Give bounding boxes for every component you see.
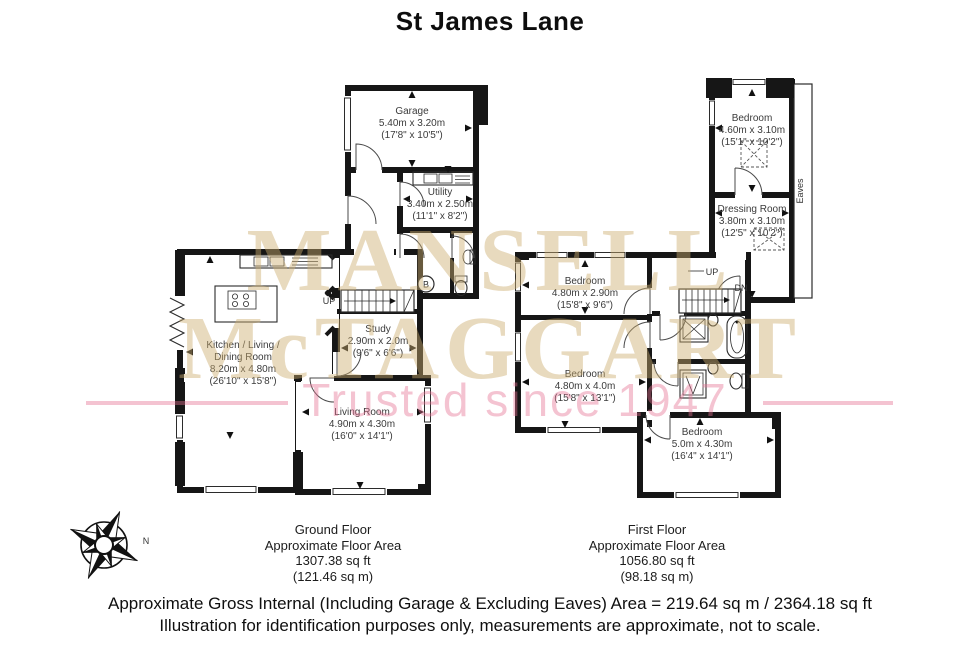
zigzag-opening-icon [169, 296, 189, 350]
living-room-label: Living Room 4.90m x 4.30m (16'0" x 14'1"… [329, 407, 395, 443]
floorplan-page: St James Lane [0, 0, 980, 653]
footer-disclaimer-line: Illustration for identification purposes… [0, 616, 980, 636]
room-dining-bay [180, 378, 298, 490]
garage-label: Garage 5.40m x 3.20m (17'8" x 10'5") [379, 106, 445, 142]
room-entrance-hall [348, 170, 400, 252]
page-title: St James Lane [0, 6, 980, 37]
bedroom-mid-label: Bedroom 4.80m x 4.0m (15'8" x 13'1") [554, 369, 616, 405]
bedroom-left-label: Bedroom 4.80m x 2.90m (15'8" x 9'6") [552, 276, 618, 312]
boiler-icon: B [418, 276, 434, 292]
first-floor-caption: First Floor Approximate Floor Area 1056.… [589, 522, 726, 584]
footer-gross-area-line: Approximate Gross Internal (Including Ga… [0, 594, 980, 614]
eaves-label: Eaves [795, 178, 805, 204]
study-label: Study 2.90m x 2.0m (9'6" x 6'6") [348, 324, 409, 360]
staircase-up-icon [341, 290, 414, 312]
bedroom-bottom-label: Bedroom 5.0m x 4.30m (16'4" x 14'1") [671, 427, 733, 463]
down-label-first: DN [735, 283, 748, 293]
utility-label: Utility 3.40m x 2.50m (11'1" x 8'2") [407, 187, 473, 223]
kitchen-label: Kitchen / Living / Dining Room 8.20m x 4… [206, 340, 279, 388]
up-label-ground: UP [323, 296, 336, 306]
floorplan-drawing: B UP [0, 0, 980, 653]
up-label-first: UP [706, 267, 719, 277]
compass-north-label: N [143, 536, 150, 546]
svg-text:B: B [423, 280, 429, 290]
compass-rose-icon [55, 496, 153, 594]
dressing-room-label: Dressing Room 3.80m x 3.10m (12'5" x 10'… [718, 204, 787, 240]
bedroom-top-label: Bedroom 4.60m x 3.10m (15'1" x 10'2") [719, 113, 785, 149]
ground-floor-caption: Ground Floor Approximate Floor Area 1307… [265, 522, 402, 584]
